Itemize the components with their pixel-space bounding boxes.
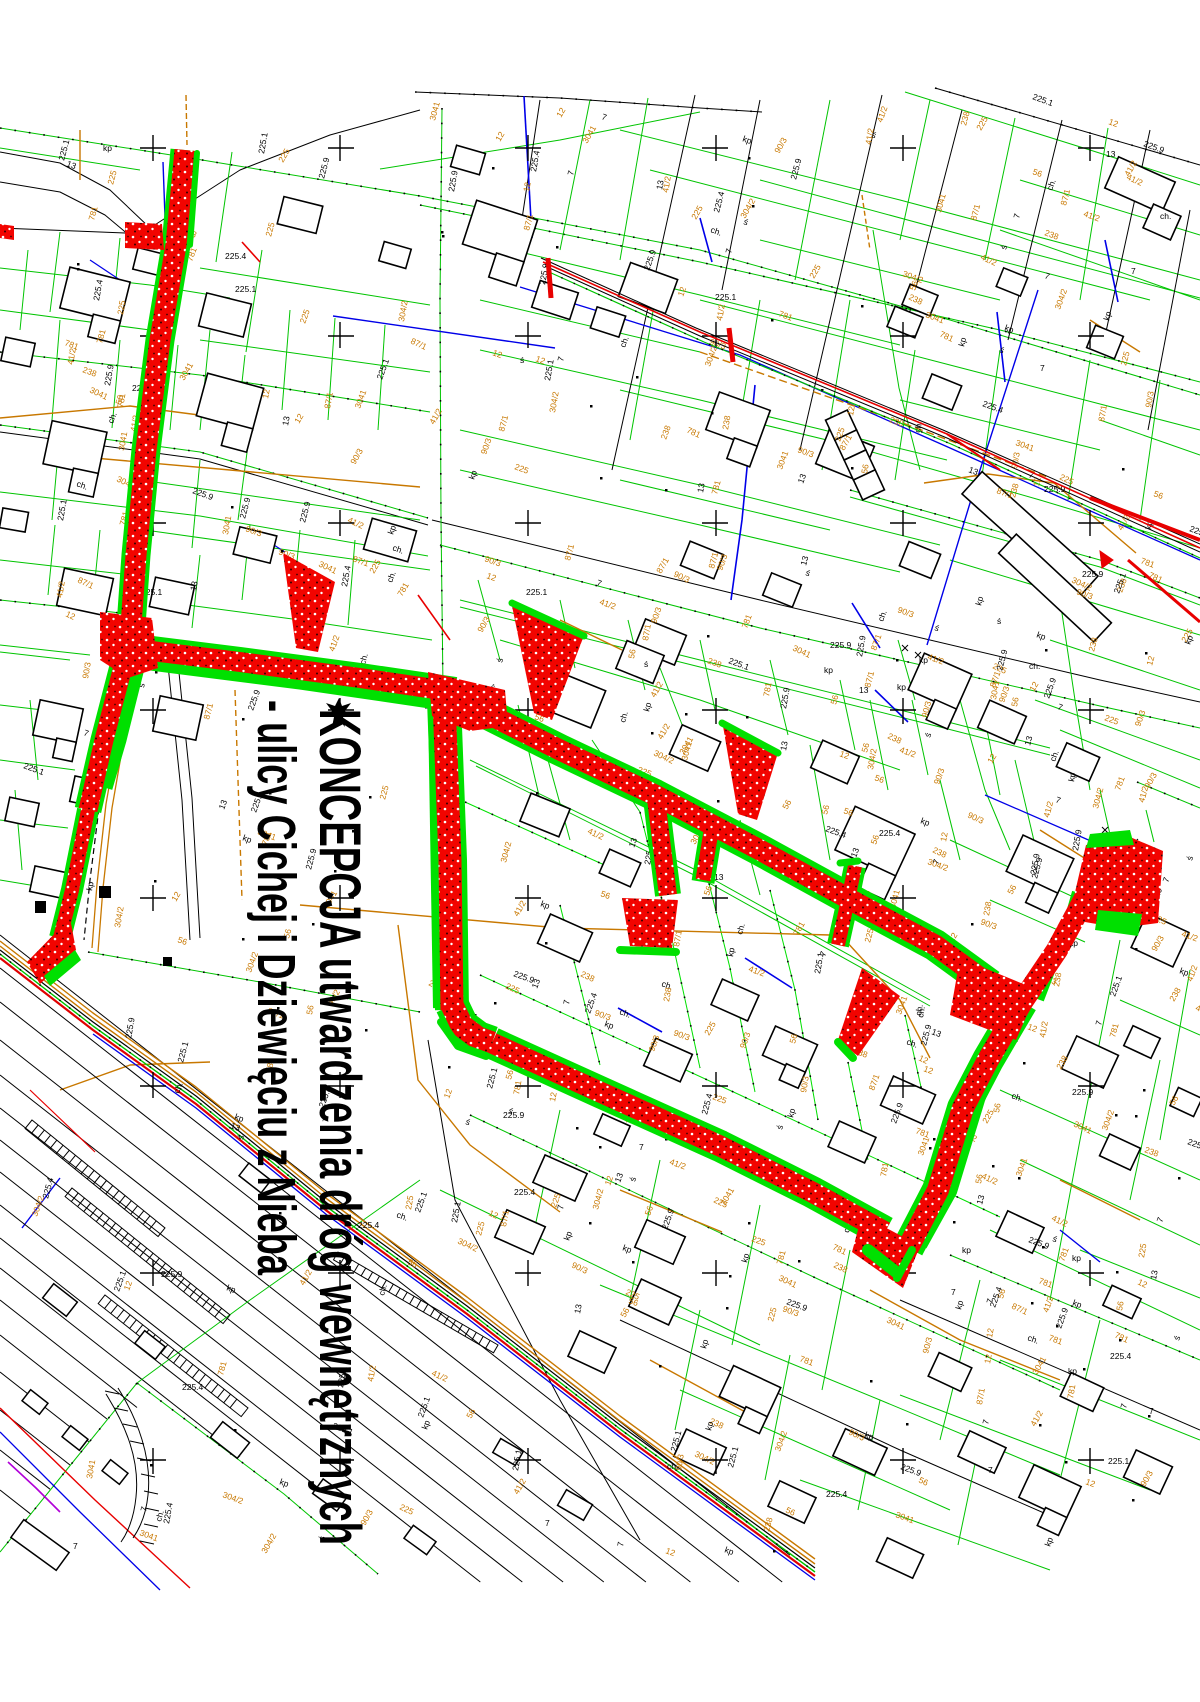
svg-text:12: 12	[938, 831, 950, 842]
svg-text:ś: ś	[997, 616, 1001, 626]
svg-text:12: 12	[982, 1353, 994, 1364]
svg-text:12: 12	[845, 405, 857, 416]
svg-text:kp: kp	[897, 682, 906, 692]
svg-text:12: 12	[260, 388, 272, 399]
svg-text:kp: kp	[962, 1245, 971, 1255]
svg-text:ś: ś	[520, 355, 524, 365]
svg-text:56: 56	[1009, 696, 1021, 707]
svg-text:7: 7	[639, 1142, 644, 1152]
svg-text:13: 13	[695, 482, 707, 493]
svg-text:ch.: ch.	[1029, 661, 1040, 671]
svg-text:7: 7	[1149, 1406, 1154, 1416]
svg-text:225.4: 225.4	[514, 1187, 536, 1197]
svg-text:225.9: 225.9	[503, 1110, 525, 1120]
svg-text:kp: kp	[1072, 1253, 1081, 1263]
svg-text:13: 13	[654, 179, 666, 190]
svg-text:56: 56	[626, 648, 638, 659]
svg-text:225.4: 225.4	[1110, 1351, 1132, 1361]
svg-text:225.9: 225.9	[161, 1269, 183, 1279]
svg-text:12: 12	[521, 181, 533, 192]
svg-text:13: 13	[859, 685, 869, 695]
svg-text:13: 13	[778, 740, 790, 751]
svg-text:7: 7	[1131, 266, 1136, 276]
svg-text:7: 7	[988, 1465, 993, 1475]
svg-text:7: 7	[545, 1518, 550, 1528]
svg-text:225.1: 225.1	[715, 292, 737, 302]
svg-text:13: 13	[572, 1303, 584, 1314]
svg-text:7: 7	[1040, 363, 1045, 373]
svg-text:7: 7	[73, 1541, 78, 1551]
svg-text:13: 13	[1148, 1269, 1160, 1280]
svg-text:ch.: ch.	[667, 1461, 678, 1471]
svg-text:12: 12	[984, 1327, 996, 1338]
svg-text:225.4: 225.4	[225, 251, 247, 261]
svg-text:- ulicy Cichej i Dziewięciu z: - ulicy Cichej i Dziewięciu z Nieba	[246, 700, 306, 1276]
svg-text:KONCEPCJA utwardzenia dróg wew: KONCEPCJA utwardzenia dróg wewnętrznych	[307, 709, 372, 1545]
svg-text:12: 12	[547, 1091, 559, 1102]
svg-text:kp: kp	[824, 665, 833, 675]
svg-text:225.1: 225.1	[526, 587, 548, 597]
svg-text:225.9: 225.9	[830, 640, 852, 650]
svg-text:56: 56	[859, 463, 871, 474]
svg-text:7: 7	[951, 1287, 956, 1297]
svg-text:13: 13	[280, 415, 292, 426]
svg-text:kp: kp	[1068, 1366, 1077, 1376]
svg-text:225.4: 225.4	[182, 1382, 204, 1392]
svg-text:56: 56	[1114, 1300, 1126, 1311]
svg-text:225.1: 225.1	[235, 284, 257, 294]
svg-text:225.1: 225.1	[1108, 1456, 1130, 1466]
svg-text:kp: kp	[919, 655, 928, 665]
svg-text:ch.: ch.	[1160, 211, 1171, 221]
svg-text:225.4: 225.4	[826, 1489, 848, 1499]
svg-text:13: 13	[188, 580, 200, 591]
svg-text:ch.: ch.	[915, 1005, 927, 1018]
svg-text:225.4: 225.4	[879, 828, 901, 838]
svg-text:ś: ś	[644, 659, 648, 669]
svg-text:kp: kp	[103, 143, 112, 153]
svg-text:13: 13	[1106, 149, 1116, 159]
svg-text:225.9: 225.9	[1082, 569, 1104, 579]
